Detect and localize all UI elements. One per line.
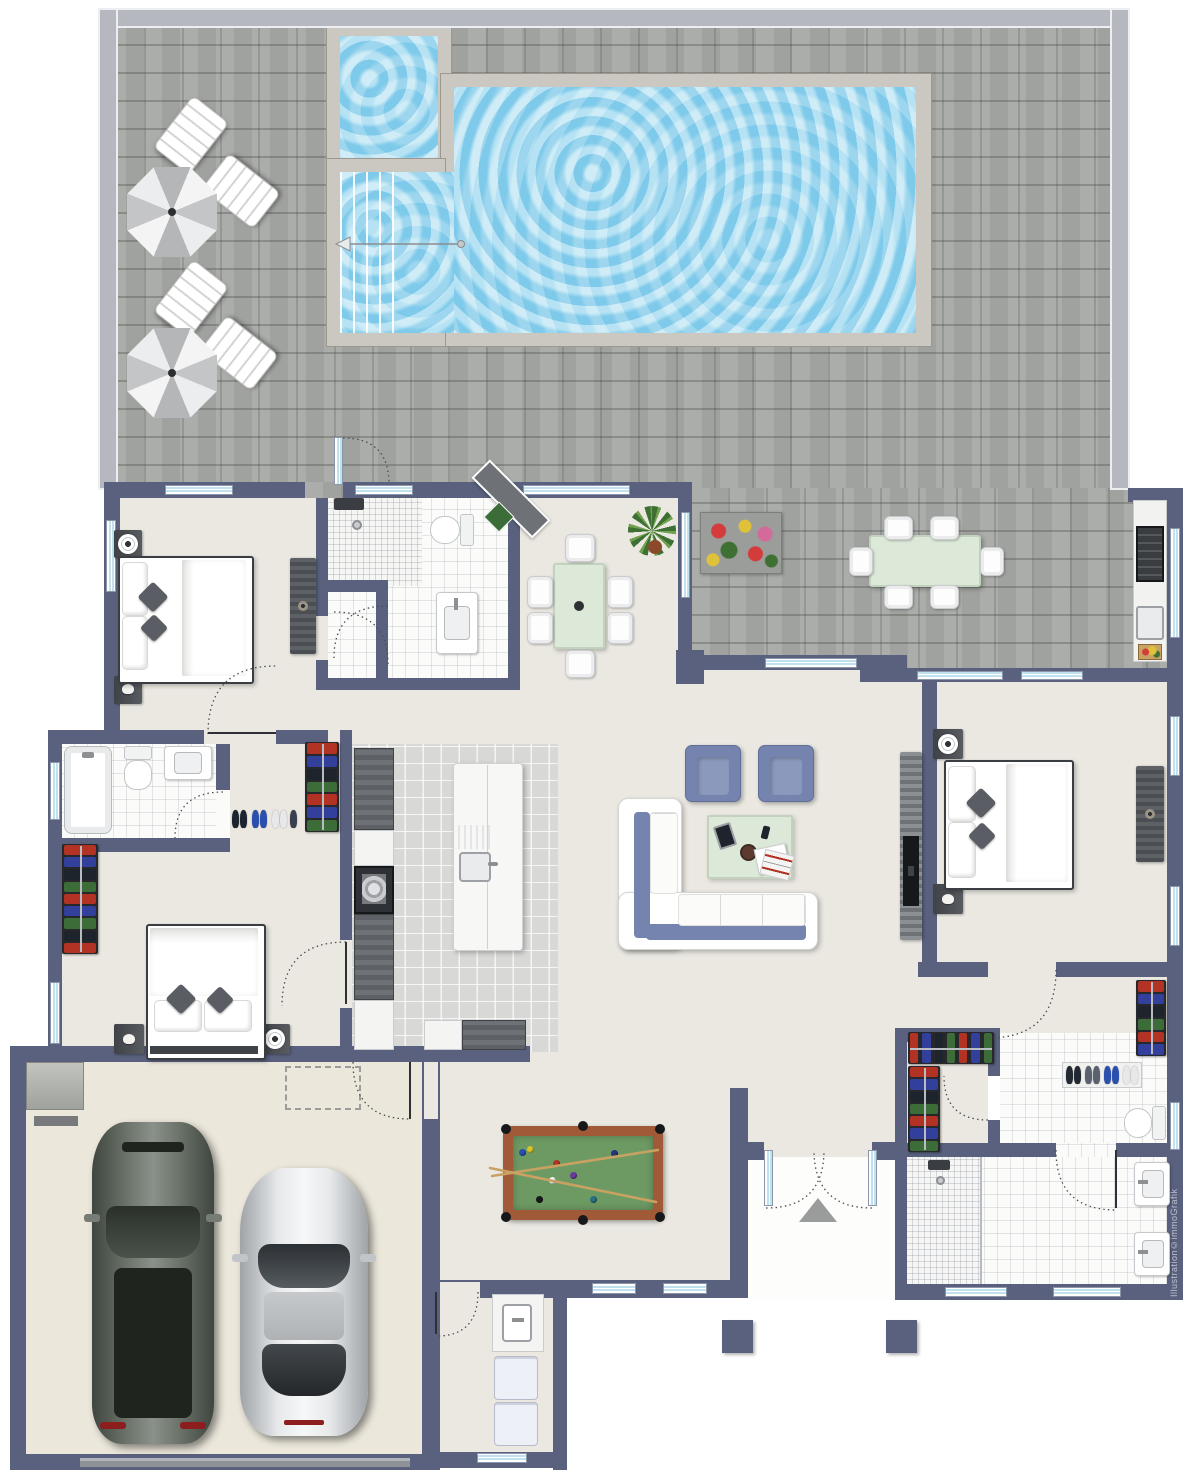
sofa-back-cushion <box>634 812 650 938</box>
cutting-board <box>1138 644 1162 660</box>
billiard-ball <box>611 1150 618 1157</box>
suv-car <box>92 1122 214 1444</box>
pillow <box>948 766 976 822</box>
outdoor-chair <box>930 585 959 609</box>
floor-plan: Illustration©immoGrafik <box>0 0 1200 1481</box>
dining-chair <box>527 576 553 608</box>
sink <box>444 606 470 640</box>
pocket <box>501 1124 511 1134</box>
wall <box>316 496 328 690</box>
sink <box>174 752 202 774</box>
taillight <box>100 1422 126 1429</box>
door-gap <box>316 616 328 660</box>
faucet-icon <box>1138 1250 1148 1254</box>
rack-bar <box>1151 982 1153 1054</box>
outdoor-table <box>869 535 981 587</box>
dining-chair <box>565 650 595 678</box>
armchair-seat <box>770 757 802 795</box>
terrace-door-leaf <box>334 437 343 485</box>
dish-rack <box>458 825 492 849</box>
window <box>917 671 1003 680</box>
flower-planter <box>700 512 782 574</box>
entry-door-leaf <box>764 1150 773 1206</box>
sliding-door <box>523 485 630 495</box>
wall <box>553 1294 567 1470</box>
toilet-bowl <box>1124 1108 1152 1138</box>
shoe-tray <box>1062 1062 1142 1088</box>
kitchen-counter <box>354 830 394 866</box>
window <box>1053 1287 1121 1297</box>
coffee-cup-icon <box>742 846 755 859</box>
window <box>1170 886 1180 946</box>
toilet-tank <box>460 514 474 546</box>
wall <box>895 1284 1183 1300</box>
utility-box <box>34 1116 78 1126</box>
wall <box>918 962 988 977</box>
dining-chair <box>565 534 595 562</box>
sofa-seat <box>650 812 678 894</box>
dryer <box>494 1402 538 1446</box>
laundry-sink <box>502 1304 532 1342</box>
pocket <box>501 1212 511 1222</box>
billiard-ball <box>519 1149 526 1156</box>
fence-left <box>100 10 116 488</box>
mirror <box>232 1254 248 1262</box>
window <box>1170 716 1180 776</box>
toilet <box>430 514 474 546</box>
wall <box>895 1028 907 1300</box>
pocket <box>578 1215 588 1225</box>
kitchen-cabinet <box>354 748 394 830</box>
sofa-back-cushion <box>646 924 806 940</box>
faucet-icon <box>512 1318 524 1322</box>
entrance-arrow-icon <box>799 1198 837 1222</box>
wall <box>748 1142 764 1160</box>
wall <box>676 650 704 684</box>
pocket <box>578 1121 588 1131</box>
window <box>165 485 233 495</box>
sink <box>1142 1240 1164 1268</box>
oven-door <box>362 874 386 904</box>
window <box>663 1283 707 1294</box>
water-heater <box>26 1062 84 1110</box>
bathtub <box>64 746 112 834</box>
shower-fixture <box>334 498 364 510</box>
window <box>477 1453 527 1463</box>
outdoor-chair <box>930 516 959 540</box>
sofa-seat <box>678 894 806 926</box>
window <box>50 982 60 1044</box>
headboard <box>150 1046 258 1054</box>
armchair-seat <box>697 757 729 795</box>
wall <box>922 668 937 964</box>
taillight <box>180 1422 206 1429</box>
wall <box>1056 962 1183 977</box>
outdoor-sink <box>1136 606 1164 640</box>
door-gap <box>216 790 230 838</box>
pocket <box>655 1212 665 1222</box>
shower-drain <box>352 520 362 530</box>
toilet-bowl <box>430 516 460 544</box>
faucet-icon <box>1138 1180 1148 1184</box>
wall <box>878 1143 1056 1157</box>
dresser <box>290 558 316 654</box>
kitchen-cabinet <box>462 1020 526 1050</box>
rack-bar <box>80 846 82 952</box>
wall <box>1116 1143 1168 1157</box>
billiard-felt <box>513 1136 653 1210</box>
island-sink <box>459 852 491 882</box>
toilet <box>122 746 154 792</box>
lamp-icon <box>118 534 138 554</box>
decor-shell-icon <box>942 894 954 904</box>
sunroof <box>114 1268 192 1418</box>
billiard-ball <box>553 1160 560 1167</box>
billiard-ball <box>536 1196 543 1203</box>
windshield <box>106 1206 200 1258</box>
wall <box>860 655 907 682</box>
kitchen-cabinet <box>354 1000 394 1050</box>
door-gap <box>424 1062 438 1119</box>
entry-door-leaf <box>868 1150 877 1206</box>
shower-glass <box>980 1157 982 1285</box>
kids-pool-water <box>340 36 438 158</box>
lamp-icon <box>265 1029 285 1049</box>
outdoor-chair <box>884 516 913 540</box>
garage-door <box>80 1458 410 1467</box>
clothes-rack <box>1136 980 1166 1056</box>
porch-pillar <box>722 1320 753 1353</box>
master-bath-door-gap <box>1056 1143 1116 1157</box>
kitchen-counter <box>424 1020 462 1050</box>
dining-chair <box>607 612 633 644</box>
decor-shell-icon <box>123 1034 135 1044</box>
sports-car <box>240 1168 368 1436</box>
rack-bar <box>910 1048 992 1050</box>
umbrella-icon <box>127 167 217 257</box>
windshield <box>258 1244 350 1288</box>
taillight <box>284 1420 324 1425</box>
clothes-rack <box>908 1032 994 1064</box>
mirror <box>360 1254 376 1262</box>
roof <box>264 1292 344 1340</box>
faucet-icon <box>82 752 94 758</box>
table-centerpiece <box>574 601 584 611</box>
clothes-rack <box>62 844 98 954</box>
billiard-ball <box>570 1172 577 1179</box>
duvet <box>182 560 246 676</box>
outdoor-chair <box>980 547 1004 576</box>
sink <box>1142 1170 1164 1198</box>
window <box>1170 528 1180 638</box>
shower-drain <box>936 1176 945 1185</box>
faucet-icon <box>454 598 458 610</box>
wall <box>376 592 388 678</box>
window <box>1021 671 1083 680</box>
plant-pot <box>648 540 662 554</box>
window <box>50 762 60 820</box>
clothes-rack <box>305 742 339 832</box>
watermark: Illustration©immoGrafik <box>1169 1152 1183 1297</box>
wall <box>316 678 520 690</box>
door-gap <box>340 940 352 1008</box>
umbrella-icon <box>127 328 217 418</box>
toilet-tank <box>124 746 152 760</box>
toilet-tank <box>1152 1106 1166 1140</box>
porch-pillar <box>886 1320 917 1353</box>
dresser <box>1136 766 1164 862</box>
dining-chair <box>527 612 553 644</box>
mirror <box>206 1214 222 1222</box>
toilet-bowl <box>124 760 152 790</box>
door-gap <box>440 1282 480 1298</box>
pocket <box>655 1124 665 1134</box>
duvet <box>1006 764 1068 882</box>
toilet <box>1124 1106 1166 1140</box>
billiard-ball <box>527 1146 534 1153</box>
window <box>355 485 413 495</box>
fence-top <box>100 10 1128 26</box>
billiard-ball <box>590 1196 597 1203</box>
main-pool-water <box>454 87 916 333</box>
outdoor-chair <box>849 547 873 576</box>
faucet-icon <box>488 862 498 866</box>
rack-bar <box>924 1068 926 1150</box>
ceiling-hatch <box>285 1066 361 1110</box>
sliding-door <box>765 658 857 668</box>
window <box>1170 1102 1180 1150</box>
washer <box>494 1356 538 1400</box>
window <box>945 1287 1007 1297</box>
grill <box>1136 526 1164 582</box>
door-gap <box>204 730 276 744</box>
wall <box>10 1046 26 1470</box>
wall <box>328 580 388 592</box>
pool-steps <box>340 172 404 333</box>
outdoor-chair <box>884 585 913 609</box>
mirror <box>84 1214 100 1222</box>
shoe-row <box>232 808 300 832</box>
wall <box>988 1120 1000 1145</box>
fence-right <box>1112 10 1128 488</box>
duvet <box>150 928 258 996</box>
rack-bar <box>322 744 324 830</box>
billiard-ball <box>549 1177 556 1184</box>
dining-chair <box>607 576 633 608</box>
decor-shell-icon <box>122 684 134 694</box>
kitchen-cabinet <box>354 914 394 1000</box>
front-grille <box>122 1142 184 1152</box>
shower-fixture <box>928 1160 950 1170</box>
wall <box>730 1088 748 1282</box>
window <box>592 1283 636 1294</box>
window <box>681 512 690 598</box>
lamp-icon <box>938 734 958 754</box>
clothes-rack <box>908 1066 940 1152</box>
rear-window <box>262 1344 346 1396</box>
wall <box>48 730 204 744</box>
tv-mount <box>908 866 914 876</box>
